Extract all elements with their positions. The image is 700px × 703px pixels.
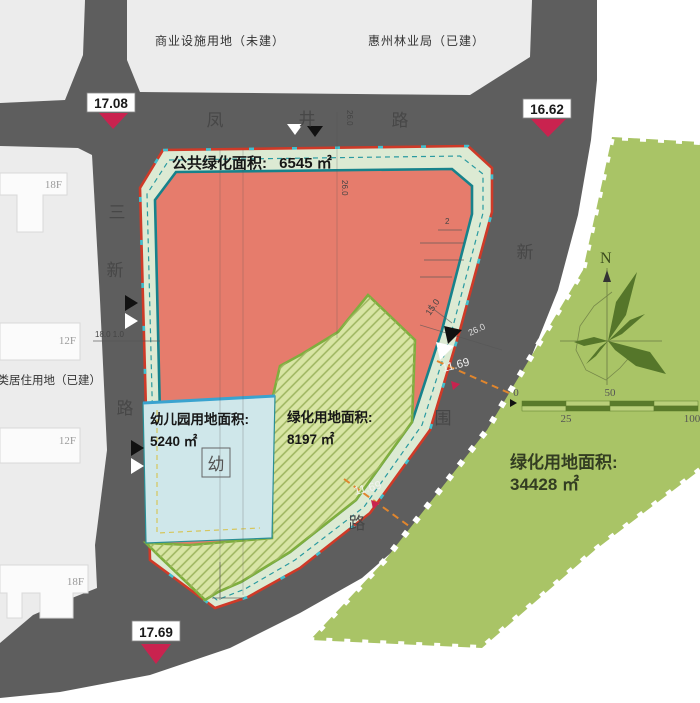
road-top-char-2: 井 [299, 110, 316, 129]
green-subparcel-area-value: 8197 ㎡ [287, 431, 335, 447]
commercial-label: 商业设施用地（未建） [155, 33, 285, 48]
building-label-18f-top: 18F [45, 179, 62, 191]
dim-left-chain: 18.0 1.0 [95, 330, 124, 339]
dim-inner: 26.0 [340, 180, 349, 196]
kindergarten-marker-char: 幼 [208, 455, 225, 474]
road-left-char-2: 新 [107, 261, 124, 280]
scale-tick-25: 25 [561, 413, 573, 425]
map-svg: 18F 12F 12F 18F 二类居住用地（已建） 商业设施用地（未建） 惠州… [0, 0, 700, 703]
elevation-value-2: 16.62 [530, 102, 564, 117]
site-plan-map: 18F 12F 12F 18F 二类居住用地（已建） 商业设施用地（未建） 惠州… [0, 0, 700, 703]
scale-tick-100: 100 [684, 413, 700, 425]
scale-tick-0: 0 [513, 387, 519, 399]
public-green-label: 公共绿化面积: 6545 ㎡ [172, 154, 332, 172]
dim-road-top: 26.0 [345, 110, 354, 126]
elevation-value-1: 17.08 [94, 96, 128, 111]
building-label-12f-b: 12F [59, 435, 76, 447]
big-green-label: 绿化用地面积: [510, 452, 618, 472]
road-left-char-1: 三 [109, 203, 126, 222]
kindergarten-label: 幼儿园用地面积: [150, 411, 249, 427]
road-arc-char-2: 围 [435, 409, 452, 428]
road-top-char-3: 路 [392, 111, 409, 130]
north-label: N [600, 250, 612, 267]
road-left-char-3: 路 [117, 399, 134, 418]
building-label-18f-bottom: 18F [67, 576, 84, 588]
kindergarten-area-value: 5240 ㎡ [150, 433, 198, 449]
public-green-area-value: 6545 ㎡ [279, 154, 332, 172]
forestry-label: 惠州林业局（已建） [368, 34, 485, 48]
elevation-value-3: 17.69 [139, 625, 173, 640]
road-arc-char-3: 路 [349, 514, 366, 533]
scale-tick-50: 50 [605, 387, 617, 399]
big-green-area-value: 34428 ㎡ [510, 474, 579, 494]
public-green-label-text: 公共绿化面积: [172, 154, 267, 172]
dim-note-2: 2 [445, 217, 450, 226]
road-arc-char-1: 新 [517, 243, 534, 262]
green-subparcel-label: 绿化用地面积: [287, 409, 373, 425]
residential-label: 二类居住用地（已建） [0, 373, 101, 387]
road-top-char-1: 凤 [207, 111, 224, 130]
building-label-12f-a: 12F [59, 335, 76, 347]
